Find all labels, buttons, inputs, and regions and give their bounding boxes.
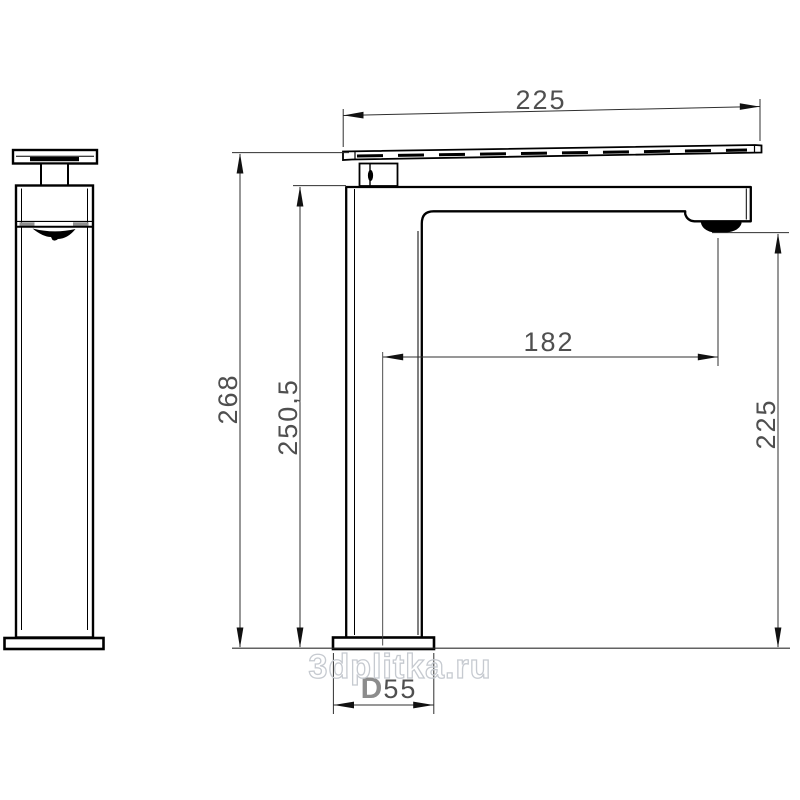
arrow-down [237,628,244,648]
arrow-up [297,186,304,206]
dim-label-outlet-height: 225 [751,398,781,449]
body-front-outline [16,186,93,638]
dim-label-overall-height: 268 [213,373,243,424]
arrow-left [344,112,364,119]
arrow-down [775,628,782,648]
side-view [333,145,762,649]
faucet-dimension-drawing: 225 268 250,5 182 [0,0,800,800]
dim-top-width: 225 [343,85,760,147]
front-view [5,150,104,649]
dim-body-height: 250,5 [273,186,346,648]
base-plate-front [5,638,104,649]
dim-label-top-width: 225 [515,85,566,115]
handle-stem [41,164,68,186]
spout-aerator-side [701,221,742,233]
arrow-down [297,628,304,648]
dim-spout-reach: 182 [383,238,718,366]
dimensions: 225 268 250,5 182 [213,85,790,714]
dim-outlet-height: 225 [712,233,789,648]
cartridge-detail [368,170,373,181]
arrow-up [775,233,782,253]
lever-blade [343,145,762,160]
dim-label-spout-reach: 182 [523,327,574,357]
dim-label-body-height: 250,5 [273,378,303,456]
arrow-right [740,103,760,110]
arrow-up [237,153,244,173]
arrow-right [698,354,718,361]
cartridge-block [360,164,398,187]
handle-blade-section [30,157,79,161]
watermark: 3dplitka.ru [309,648,492,686]
body-side-profile [346,187,751,637]
arrow-left [334,702,354,709]
